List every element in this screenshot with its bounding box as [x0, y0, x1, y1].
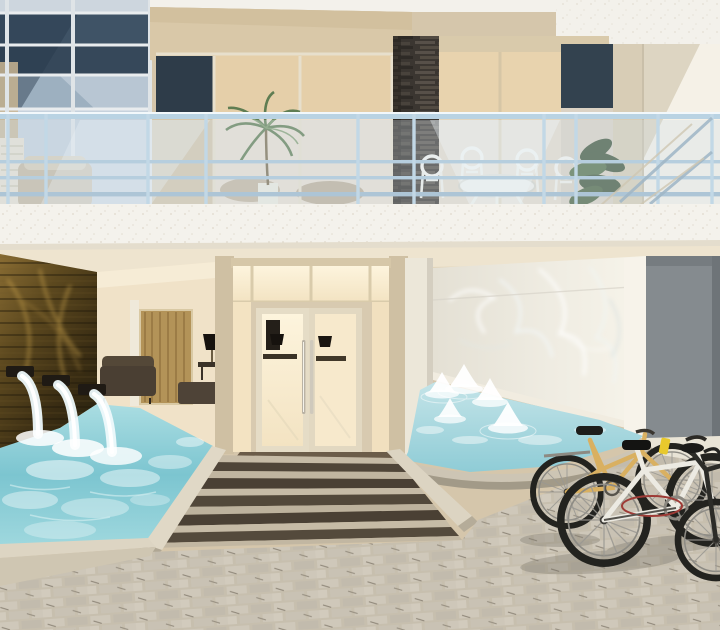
balcony-railing: [0, 112, 720, 208]
tan-bike-seat: [576, 426, 603, 435]
entrance-doors: [256, 308, 362, 452]
white-bike-seat: [622, 440, 651, 450]
scene-svg: [0, 0, 720, 630]
dark-bike-seat: [680, 443, 704, 453]
corner-pillar: [624, 258, 646, 438]
sidelight-right: [371, 302, 389, 454]
gray-panel: [646, 256, 720, 472]
entrance-portal: [215, 256, 408, 462]
upper-floor: [0, 0, 720, 214]
sidelight-left: [233, 302, 251, 452]
rendering-canvas: Photorealistic rendering of a modern res…: [0, 0, 720, 630]
balcony-slab: [0, 204, 720, 254]
